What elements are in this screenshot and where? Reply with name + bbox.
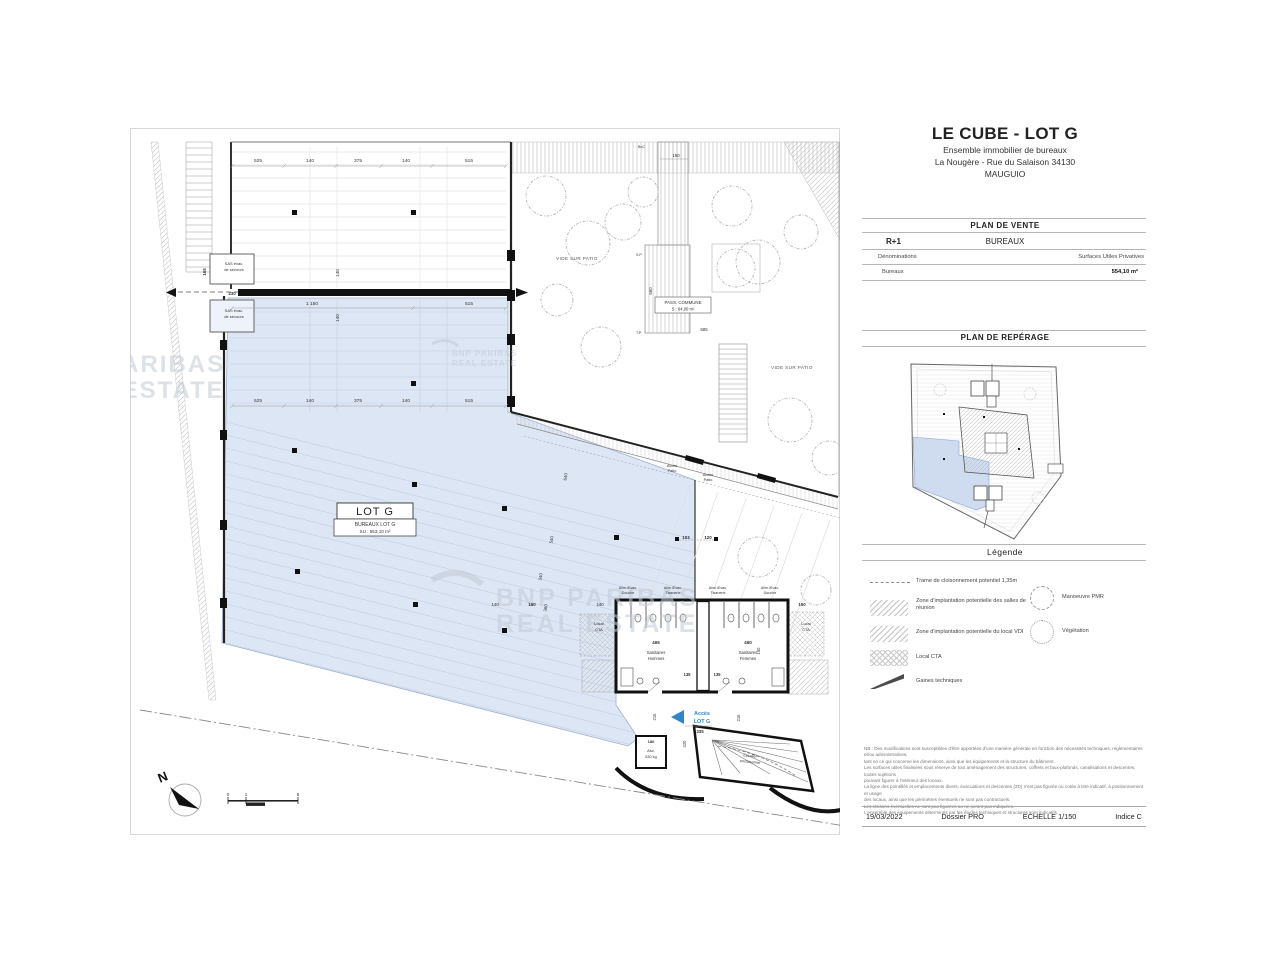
alim-label: Douche	[622, 591, 635, 595]
dim-label: 150	[798, 602, 806, 607]
acces-patio-label: Patio	[668, 469, 677, 473]
dim-label: 140	[335, 269, 340, 277]
micro-label: S.P.	[636, 253, 642, 257]
vente-row-surface: 554,10 m²	[1112, 269, 1138, 275]
alim-label: Tisanerie	[665, 591, 680, 595]
alim-label: Alim./Evac.	[619, 586, 637, 590]
title-block-footer: 19/03/2022 Dossier PRO ECHELLE 1/150 Ind…	[862, 806, 1146, 827]
dim-label: 685	[700, 327, 708, 332]
dim-label: 216	[736, 714, 741, 722]
dim-label: 150	[756, 647, 761, 655]
legend-item-pmr: Manoeuvre PMR	[1062, 594, 1104, 601]
asc-label: 630 kg	[645, 755, 656, 759]
page: BNP PARIBAS REAL ESTATE BNP PARIBAS REAL…	[0, 0, 1280, 960]
svg-text:REAL ESTATE: REAL ESTATE	[130, 377, 225, 404]
wc-label: Sanitaires	[647, 650, 666, 655]
disclaimer-line: NB : Des modifications sont susceptibles…	[864, 746, 1148, 759]
dim-label: 1 150	[306, 301, 318, 307]
sas-label: SAS évac.	[225, 308, 244, 313]
legend-swatch-vdi	[870, 626, 908, 642]
wc-num: 465	[652, 640, 660, 645]
dim-label: 230	[228, 291, 236, 296]
divider	[862, 330, 1146, 331]
dim-label: 135	[684, 672, 692, 677]
dim-label: 160	[528, 602, 536, 607]
legend-swatch-trame	[870, 582, 910, 583]
dim-label: 420	[682, 740, 687, 748]
pass-commune-label: PASS. COMMUNE	[665, 300, 702, 305]
dim-label: 660	[648, 287, 653, 295]
dim-label: 515	[465, 398, 473, 404]
lot-g-subtitle: BUREAUX LOT G	[355, 522, 396, 528]
dim-label: 140	[491, 602, 499, 607]
scale-num: 1	[245, 792, 248, 797]
sas-label: de secours	[224, 314, 244, 319]
cta-label: Local	[801, 621, 811, 626]
scale-num: 0	[227, 792, 230, 797]
acces-patio-label: Accès	[667, 464, 677, 468]
dim-label: 140	[335, 314, 340, 322]
dim-label: 165	[202, 268, 207, 276]
dossier-label: Dossier PRO	[941, 812, 984, 821]
scale-label: ECHELLE 1/150	[1023, 812, 1077, 821]
wc-num: 460	[744, 640, 752, 645]
document-subtitle: Ensemble immobilier de bureaux	[858, 145, 1152, 155]
wc-label: Femmes	[740, 656, 756, 661]
divider	[862, 249, 1146, 250]
legend-icon-vegetation	[1030, 620, 1054, 644]
dim-label: 103	[682, 535, 690, 540]
legend-item-cta: Local CTA	[916, 654, 942, 661]
cta-label: CTA	[802, 627, 810, 632]
lot-g-label-box: LOT G BUREAUX LOT G SU : 553,10 m²	[334, 503, 416, 536]
legend-item-vegetation: Végétation	[1062, 628, 1089, 635]
title-block-panel: LE CUBE - LOT G Ensemble immobilier de b…	[858, 120, 1152, 840]
micro-label: T.P.	[636, 331, 642, 335]
entry-lot: LOT G	[694, 719, 710, 725]
acces-patio-label: Patio	[704, 478, 713, 482]
wc-label: Sanitaires	[739, 650, 758, 655]
divider	[862, 280, 1146, 281]
dim-label: 375	[354, 158, 362, 164]
lot-g-surface: SU : 553,10 m²	[360, 529, 391, 534]
sas-label: SAS évac.	[225, 261, 244, 266]
divider	[862, 346, 1146, 347]
dim-label: 515	[465, 301, 473, 307]
dim-label: 140	[402, 398, 410, 404]
document-title: LE CUBE - LOT G	[858, 124, 1152, 144]
plan-date: 19/03/2022	[866, 812, 903, 821]
sas-label: de secours	[224, 267, 244, 272]
cta-label: Local	[594, 621, 604, 626]
dim-label: 140	[596, 602, 604, 607]
asc-label: Asc.	[647, 748, 655, 753]
dim-label: 216	[652, 713, 657, 721]
asc-dim: 180	[648, 739, 655, 744]
vente-row-name: Bureaux	[882, 269, 904, 275]
svg-text:BNP PARIBAS: BNP PARIBAS	[130, 351, 225, 378]
pass-commune-label: S : 64,00 m²	[672, 307, 695, 312]
dim-label: 190	[672, 153, 680, 158]
legend-swatch-reunion	[870, 600, 908, 616]
legend: Trame de cloisonnement potentiel 1,35m Z…	[858, 572, 1152, 722]
vente-col-name: Dénominations	[878, 254, 917, 260]
alim-label: Alim./Evac.	[709, 586, 727, 590]
cta-label: CTA	[595, 627, 603, 632]
disclaimer-line: Les surfaces utiles finalisées sous rése…	[864, 765, 1148, 778]
wc-label: Hommes	[648, 656, 665, 661]
vente-col-surface: Surfaces Utiles Privatives	[1078, 254, 1144, 260]
dim-label: 335	[696, 729, 704, 734]
alim-label: Alim./Evac.	[664, 586, 682, 590]
alim-label: Alim./Evac.	[761, 586, 779, 590]
legend-title: Légende	[858, 547, 1152, 557]
key-plan-map[interactable]	[888, 358, 1123, 543]
patio-label: VIDE SUR PATIO	[771, 365, 813, 370]
dim-label: 525	[254, 158, 262, 164]
acces-patio-label: Accès	[703, 473, 713, 477]
vente-title: PLAN DE VENTE	[858, 221, 1152, 230]
svg-text:BNP PARIBAS: BNP PARIBAS	[452, 349, 517, 358]
lot-g-title: LOT G	[356, 506, 394, 518]
floor-plan: BNP PARIBAS REAL ESTATE BNP PARIBAS REAL…	[130, 128, 840, 835]
dim-label: 140	[306, 398, 314, 404]
divider	[862, 560, 1146, 561]
vente-usage: BUREAUX	[858, 237, 1152, 246]
legend-item-reunion: Zone d'implantation potentielle des sall…	[916, 598, 1046, 612]
document-address: La Nougère - Rue du Salaison 34130	[858, 157, 1152, 167]
dim-label: 135	[714, 672, 722, 677]
indice-label: Indice C	[1115, 812, 1142, 821]
dim-label: 515	[465, 158, 473, 164]
divider	[862, 232, 1146, 233]
alim-label: Tisanerie	[710, 591, 725, 595]
dim-label: 375	[354, 398, 362, 404]
patio-label: VIDE SUR PATIO	[556, 256, 598, 261]
legend-item-gaines: Gaines techniques	[916, 678, 962, 685]
dim-label: 140	[402, 158, 410, 164]
legend-swatch-cta	[870, 650, 908, 666]
divider	[862, 218, 1146, 219]
dim-label: 525	[254, 398, 262, 404]
divider	[862, 264, 1146, 265]
legend-icon-pmr	[1030, 586, 1054, 610]
micro-label: BvC	[638, 145, 645, 149]
divider	[862, 544, 1146, 545]
dim-label: 120	[704, 535, 712, 540]
dim-label: 140	[306, 158, 314, 164]
legend-item-trame: Trame de cloisonnement potentiel 1,35m	[916, 578, 1046, 585]
document-city: MAUGUIO	[858, 169, 1152, 179]
disclaimer-line: La ligne des pointillés et emplacements …	[864, 784, 1148, 797]
alim-label: Douche	[764, 591, 777, 595]
svg-text:REAL ESTATE: REAL ESTATE	[452, 359, 517, 368]
scale-num: 5	[297, 792, 300, 797]
reperage-title: PLAN DE REPÉRAGE	[858, 333, 1152, 342]
legend-swatch-gaines	[870, 674, 904, 689]
entry-acces: Accès	[694, 711, 710, 717]
